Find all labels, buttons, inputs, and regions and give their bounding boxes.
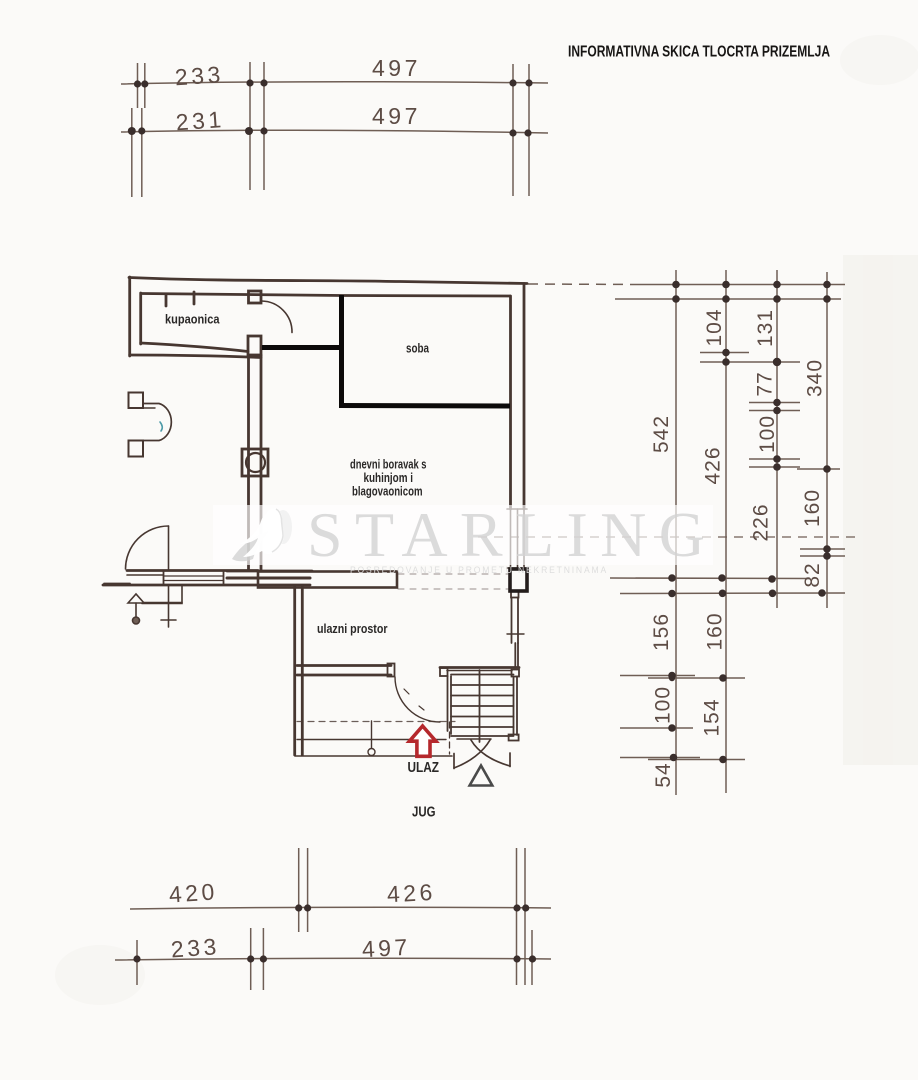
svg-text:JUG: JUG xyxy=(412,805,436,821)
svg-text:100: 100 xyxy=(756,415,779,453)
svg-text:104: 104 xyxy=(703,308,726,346)
svg-text:54: 54 xyxy=(652,762,675,787)
svg-text:497: 497 xyxy=(361,934,411,963)
svg-text:542: 542 xyxy=(650,415,673,453)
svg-text:497: 497 xyxy=(372,55,421,81)
svg-text:82: 82 xyxy=(801,562,824,587)
svg-text:497: 497 xyxy=(372,103,421,129)
svg-text:156: 156 xyxy=(650,613,673,651)
svg-text:231: 231 xyxy=(175,106,226,135)
svg-text:426: 426 xyxy=(702,446,725,484)
svg-text:POSREDOVANJE U PROMETU NEKRETN: POSREDOVANJE U PROMETU NEKRETNINAMA xyxy=(350,565,608,576)
svg-text:233: 233 xyxy=(170,933,221,962)
svg-text:kuhinjom i: kuhinjom i xyxy=(364,471,414,485)
svg-text:154: 154 xyxy=(701,698,724,736)
svg-text:77: 77 xyxy=(754,371,777,396)
svg-text:340: 340 xyxy=(804,359,827,397)
svg-text:420: 420 xyxy=(168,878,219,907)
svg-text:soba: soba xyxy=(406,342,430,356)
svg-text:ulazni prostor: ulazni prostor xyxy=(317,621,388,636)
svg-text:131: 131 xyxy=(754,309,777,347)
svg-text:233: 233 xyxy=(174,61,225,90)
svg-text:160: 160 xyxy=(801,489,824,527)
svg-text:blagovaonicom: blagovaonicom xyxy=(352,485,423,499)
svg-text:ULAZ: ULAZ xyxy=(408,760,440,776)
svg-text:226: 226 xyxy=(750,503,773,541)
svg-text:kupaonica: kupaonica xyxy=(165,312,220,327)
svg-text:160: 160 xyxy=(704,612,727,650)
svg-text:100: 100 xyxy=(652,686,675,724)
svg-text:426: 426 xyxy=(386,879,436,908)
svg-text:INFORMATIVNA SKICA TLOCRTA PRI: INFORMATIVNA SKICA TLOCRTA PRIZEMLJA xyxy=(568,44,830,61)
svg-text:dnevni boravak s: dnevni boravak s xyxy=(350,458,427,472)
